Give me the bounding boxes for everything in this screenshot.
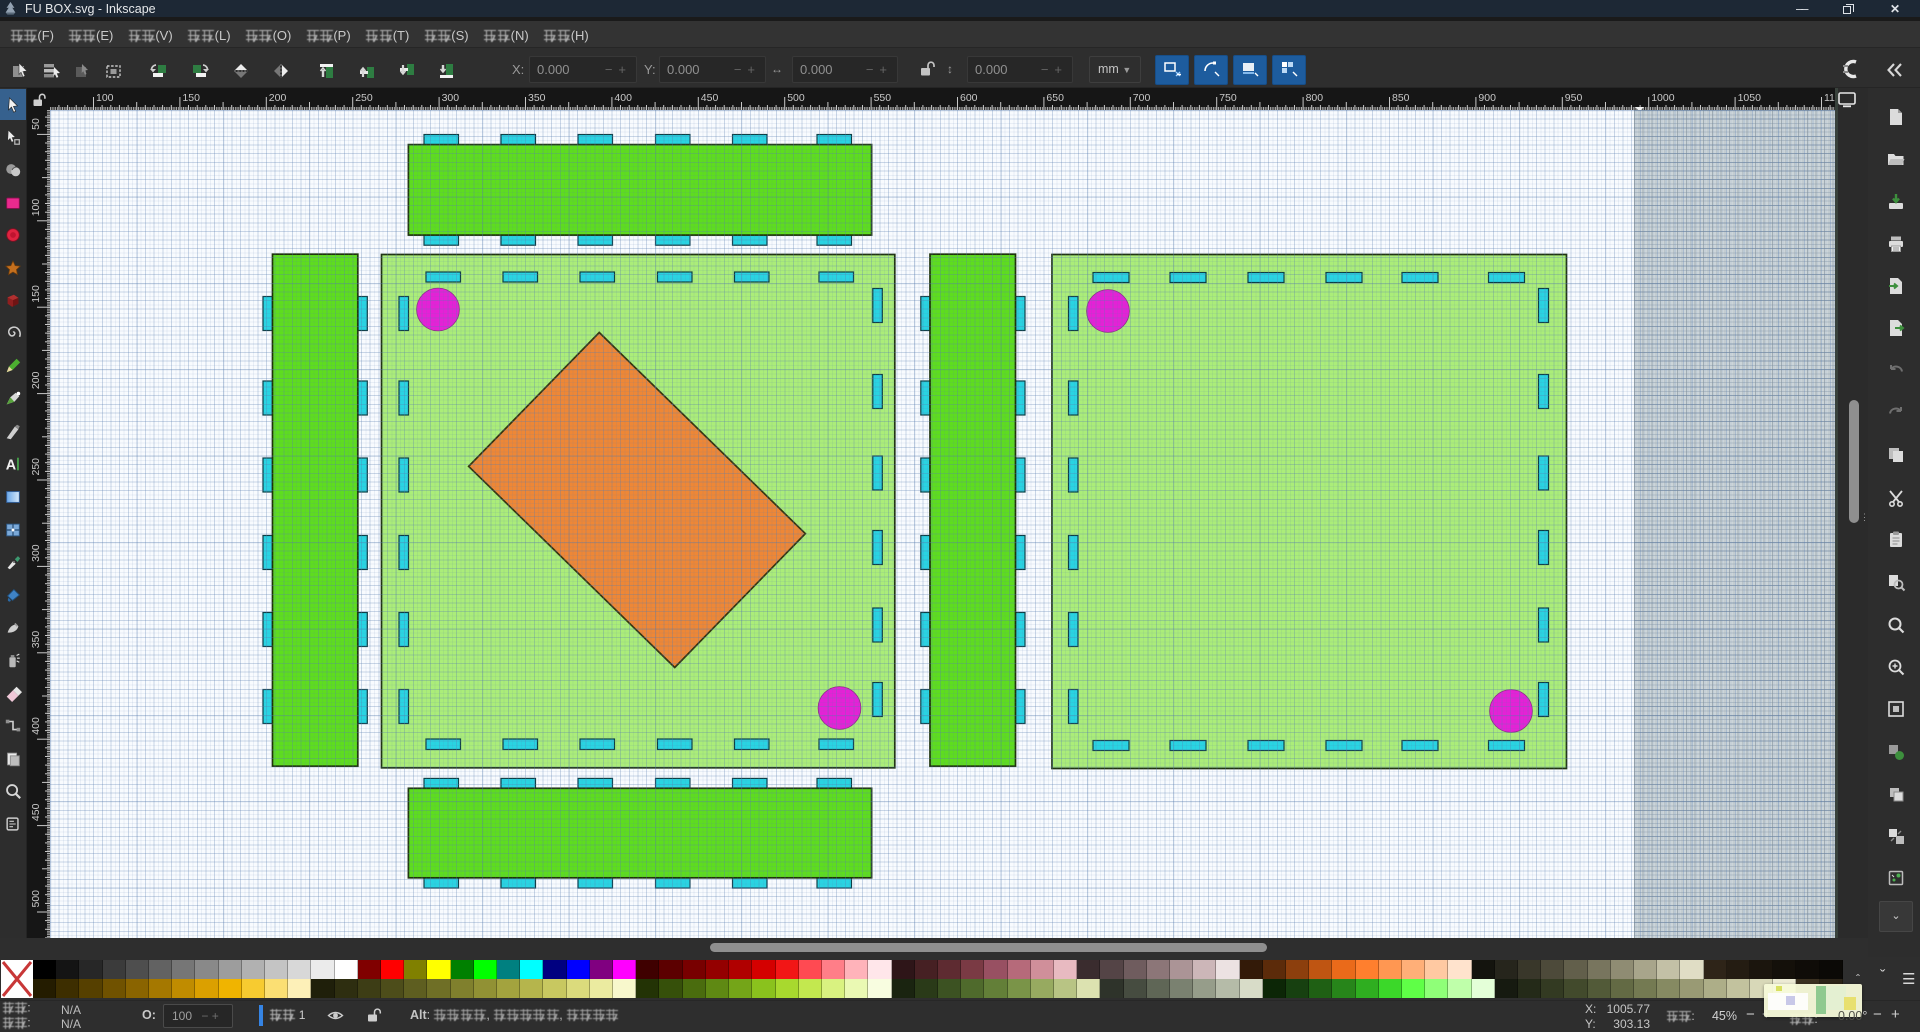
svg-text:100: 100 [30,199,42,217]
svg-text:150: 150 [182,92,200,104]
svg-text:150: 150 [30,285,42,303]
svg-text:400: 400 [30,717,42,735]
svg-text:200: 200 [30,371,42,389]
svg-text:1050: 1050 [1738,92,1762,104]
svg-text:500: 500 [30,890,42,908]
svg-text:300: 300 [442,92,460,104]
svg-text:800: 800 [1306,92,1324,104]
svg-text:250: 250 [355,92,373,104]
svg-text:450: 450 [701,92,719,104]
svg-text:950: 950 [1565,92,1583,104]
svg-text:600: 600 [960,92,978,104]
svg-text:850: 850 [1392,92,1410,104]
svg-text:200: 200 [269,92,287,104]
svg-text:350: 350 [528,92,546,104]
svg-text:300: 300 [30,544,42,562]
svg-text:700: 700 [1133,92,1151,104]
svg-text:350: 350 [30,631,42,649]
svg-text:400: 400 [614,92,632,104]
svg-text:100: 100 [96,92,114,104]
svg-text:650: 650 [1046,92,1064,104]
svg-text:750: 750 [1219,92,1237,104]
svg-text:550: 550 [874,92,892,104]
svg-text:50: 50 [30,118,42,130]
svg-text:500: 500 [787,92,805,104]
svg-text:900: 900 [1478,92,1496,104]
svg-text:1000: 1000 [1651,92,1675,104]
svg-text:450: 450 [30,803,42,821]
svg-text:250: 250 [30,458,42,476]
svg-text:A: A [6,458,17,474]
